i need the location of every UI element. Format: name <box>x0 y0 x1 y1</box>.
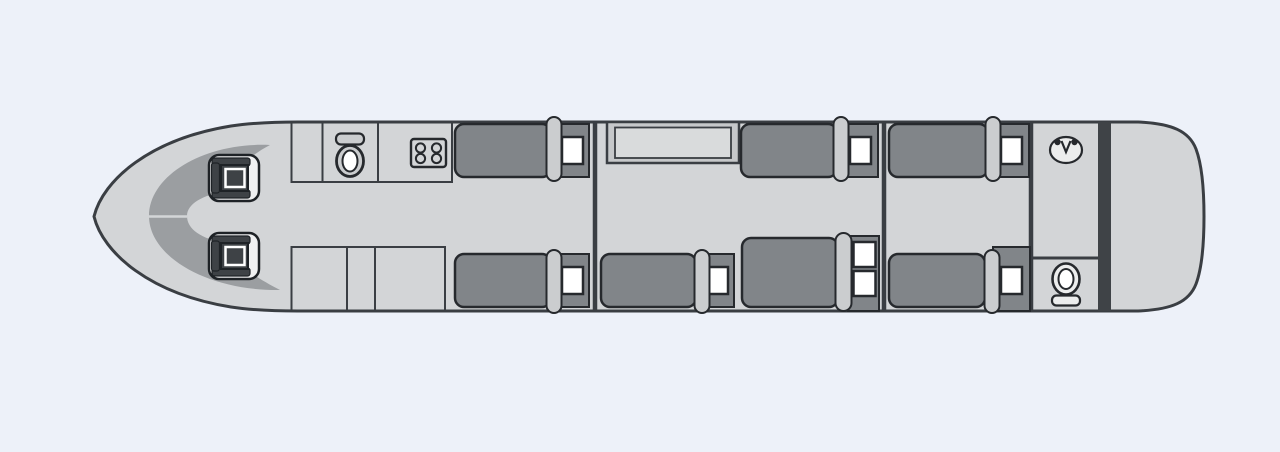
divan-group-bottom-4 <box>889 247 1030 313</box>
side-table-top <box>854 271 876 296</box>
divan-armrest <box>986 117 1001 181</box>
side-table-top <box>708 267 728 294</box>
divan-group-bottom-2 <box>601 250 734 313</box>
seat-back <box>212 241 220 271</box>
toilet-bowl-inner <box>1059 269 1074 289</box>
divan <box>742 238 838 307</box>
divan-armrest <box>985 250 1000 313</box>
divan <box>601 254 696 307</box>
toilet-base <box>1052 296 1080 306</box>
side-table-top <box>562 137 583 164</box>
pilot-seat-left <box>209 155 259 201</box>
stove-burner <box>416 154 425 163</box>
aft-wall <box>1098 122 1111 311</box>
toilet-bowl-inner <box>343 151 358 172</box>
toilet-icon <box>336 134 364 177</box>
toilet-icon <box>1052 264 1080 306</box>
side-table-top <box>854 242 876 267</box>
stove-burner <box>416 143 425 152</box>
side-table-top <box>850 137 871 164</box>
baggage-compartment <box>1112 123 1194 310</box>
divan-armrest <box>695 250 710 313</box>
divan-group-bottom-3 <box>742 233 879 311</box>
toilet-lid <box>336 134 364 145</box>
credenza-top <box>615 128 731 159</box>
divan-group-top-3 <box>889 117 1029 181</box>
divan-group-top-1 <box>455 117 589 181</box>
divan-armrest <box>836 233 852 311</box>
side-table-top <box>562 267 583 294</box>
divan-armrest <box>834 117 849 181</box>
divan <box>455 254 551 307</box>
stove-burner <box>432 154 441 163</box>
divan-group-bottom-1 <box>455 250 589 313</box>
side-table-top <box>1001 137 1022 164</box>
divan <box>889 124 988 177</box>
divan <box>455 124 551 177</box>
side-table-top <box>1001 267 1022 294</box>
pilot-seat-right <box>209 233 259 279</box>
credenza <box>607 122 739 163</box>
seat-back <box>212 163 220 193</box>
divan <box>889 254 985 307</box>
floor-plan-stage <box>0 0 1280 452</box>
divan-armrest <box>547 250 562 313</box>
stove-burner <box>432 143 441 152</box>
basin-tap <box>1071 139 1077 145</box>
divan <box>741 124 837 177</box>
basin-tap <box>1054 139 1060 145</box>
cabin-floor-plan <box>0 0 1280 452</box>
washbasin-icon <box>1050 137 1082 163</box>
divan-group-top-2 <box>741 117 878 181</box>
divan-armrest <box>547 117 562 181</box>
